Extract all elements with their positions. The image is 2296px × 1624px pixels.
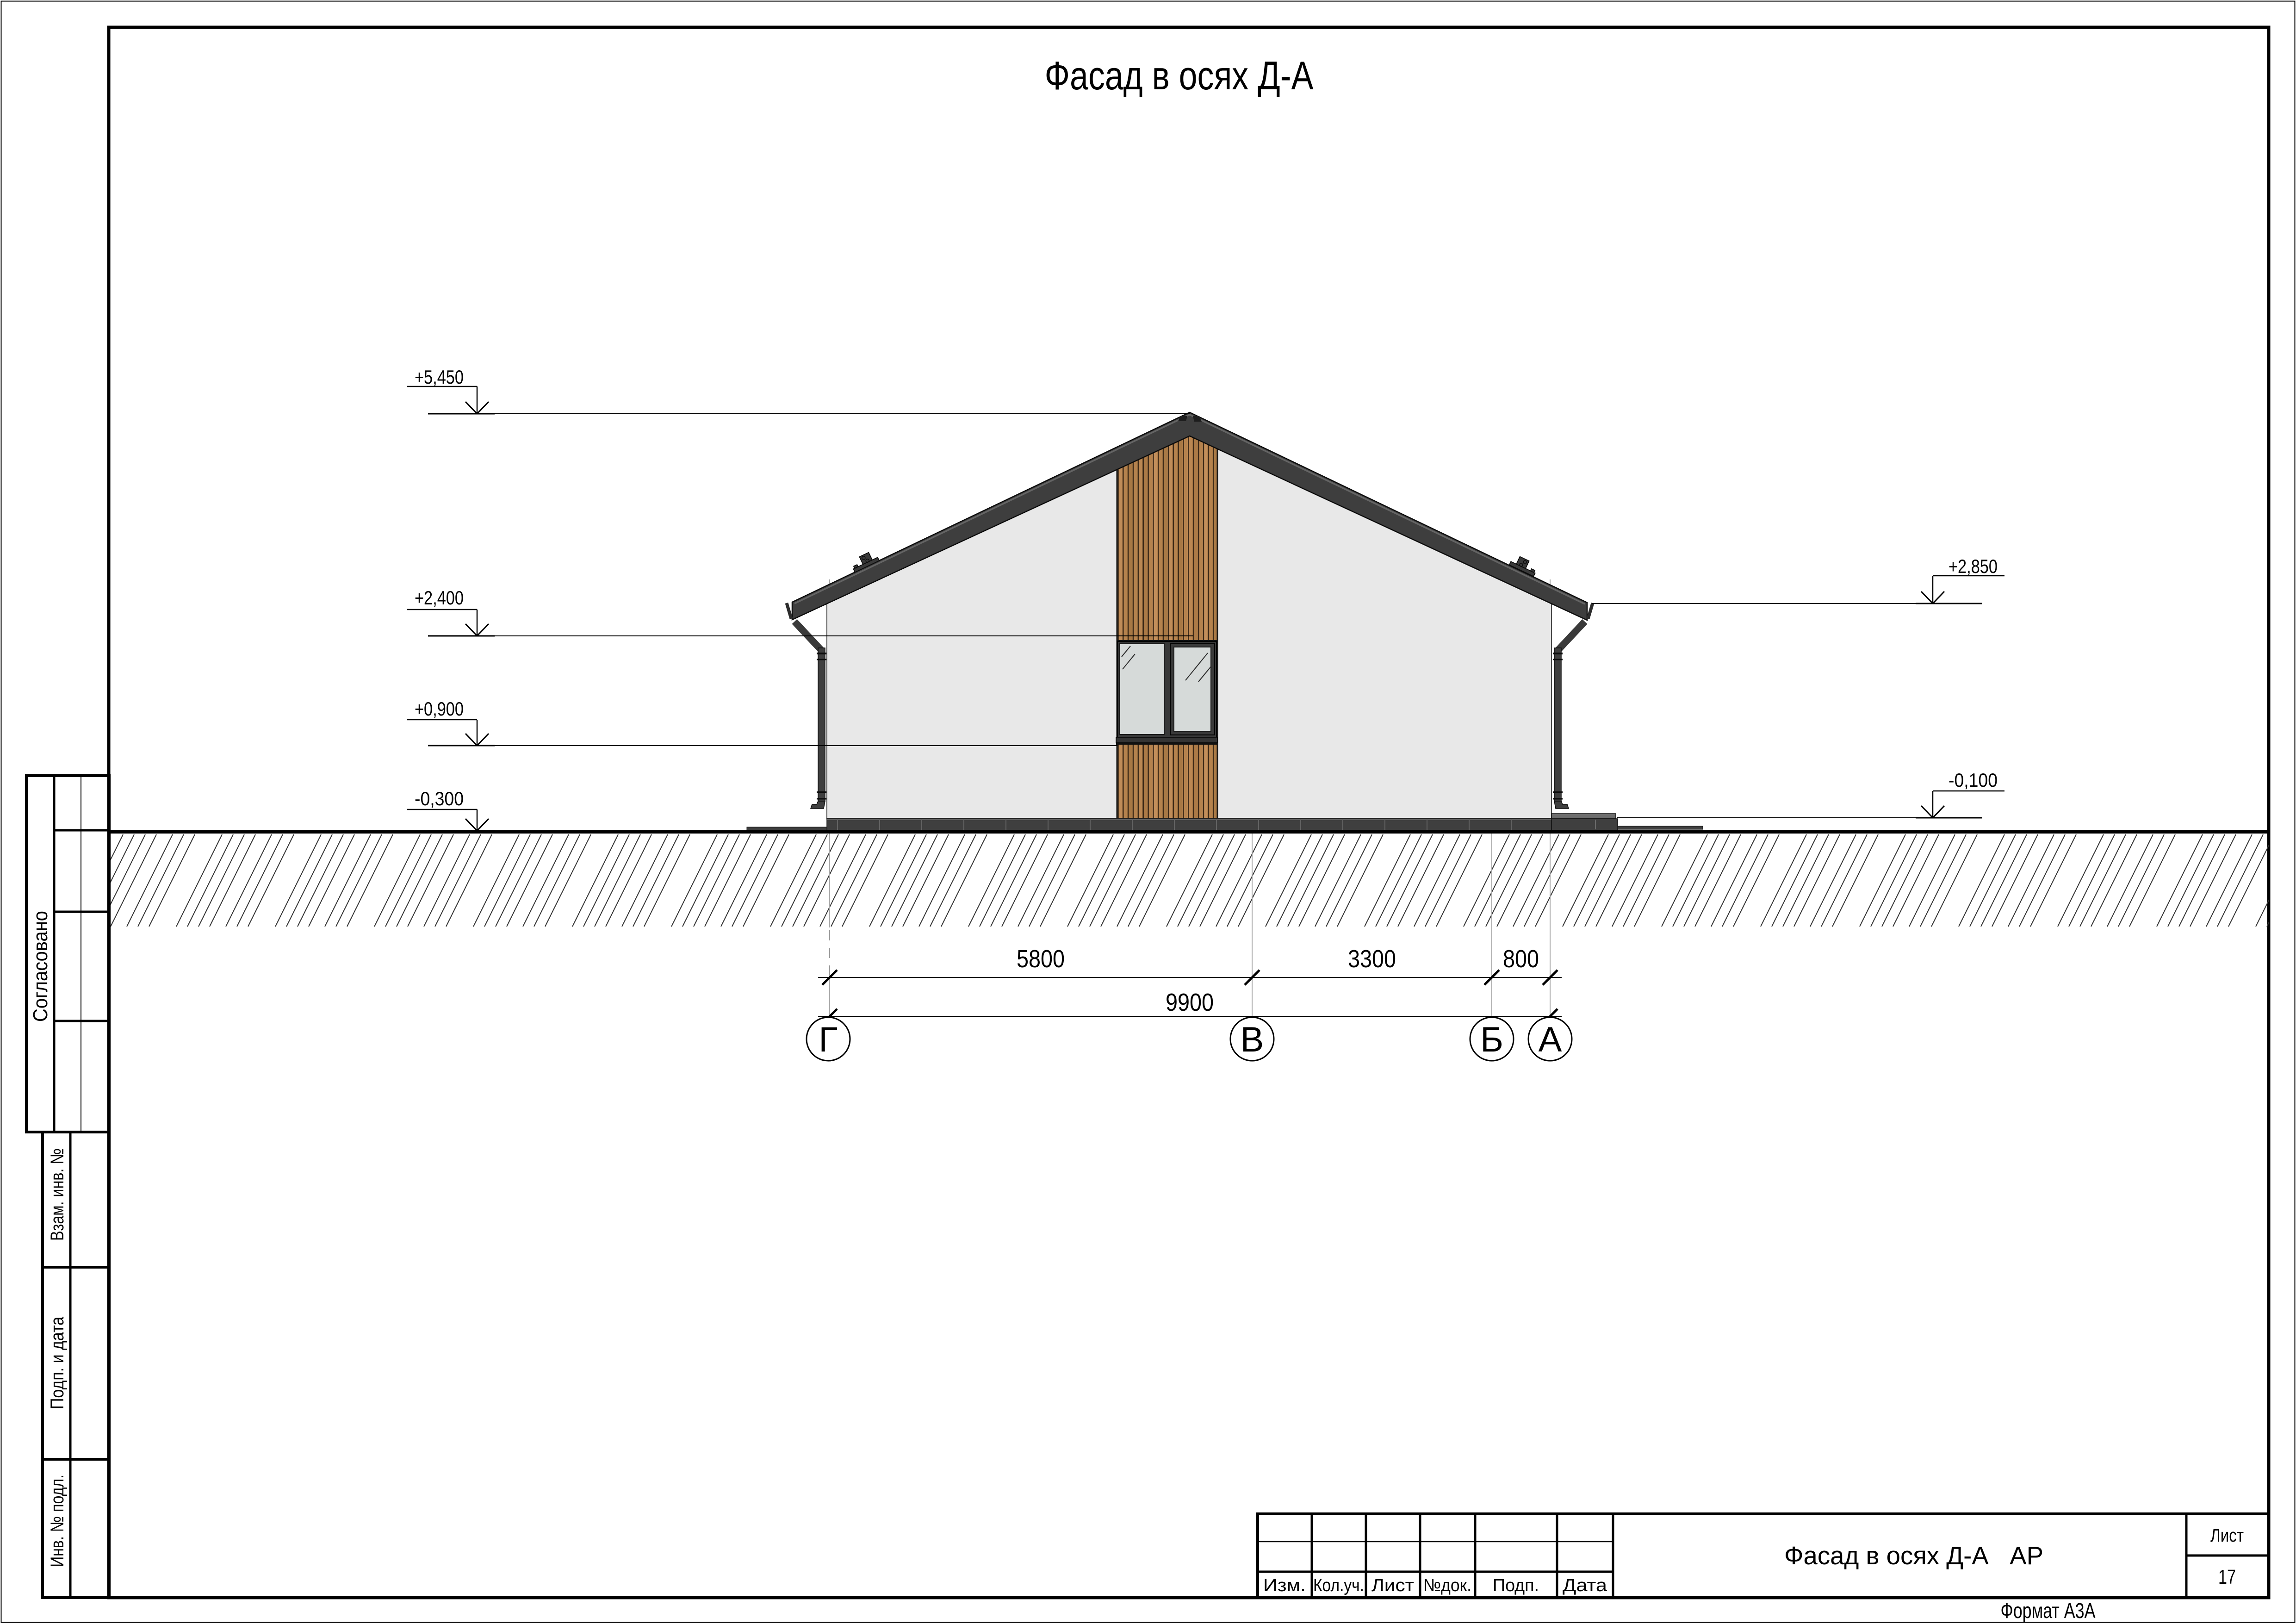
svg-text:Подп. и дата: Подп. и дата <box>47 1316 68 1409</box>
svg-text:3300: 3300 <box>1348 945 1396 973</box>
svg-text:-0,100: -0,100 <box>1948 769 1998 791</box>
svg-text:Лист: Лист <box>2210 1525 2244 1546</box>
svg-text:+2,850: +2,850 <box>1948 555 1998 577</box>
svg-text:+2,400: +2,400 <box>415 587 464 609</box>
svg-text:+5,450: +5,450 <box>415 366 464 388</box>
svg-text:Г: Г <box>819 1020 838 1059</box>
svg-text:Подп.: Подп. <box>1493 1576 1539 1595</box>
svg-text:Взам. инв. №: Взам. инв. № <box>47 1148 68 1241</box>
svg-text:В: В <box>1241 1020 1264 1059</box>
svg-text:Фасад в осях Д-А АР: Фасад в осях Д-А АР <box>1784 1541 2043 1570</box>
svg-text:Согласовано: Согласовано <box>29 911 52 1022</box>
svg-text:Инв. № подл.: Инв. № подл. <box>47 1475 68 1567</box>
svg-text:Фасад в осях Д-А: Фасад в осях Д-А <box>1045 54 1314 98</box>
svg-text:Формат А3А: Формат А3А <box>2001 1599 2096 1623</box>
svg-text:Б: Б <box>1480 1020 1503 1059</box>
svg-text:-0,300: -0,300 <box>415 788 464 809</box>
svg-text:Изм.: Изм. <box>1263 1576 1306 1595</box>
svg-text:9900: 9900 <box>1166 989 1214 1016</box>
svg-text:17: 17 <box>2218 1566 2236 1588</box>
svg-text:Кол.уч.: Кол.уч. <box>1313 1576 1364 1595</box>
svg-text:800: 800 <box>1503 945 1539 973</box>
svg-text:5800: 5800 <box>1017 945 1065 973</box>
svg-text:А: А <box>1539 1020 1562 1059</box>
svg-text:Дата: Дата <box>1563 1576 1607 1595</box>
svg-text:№док.: №док. <box>1423 1576 1471 1595</box>
svg-text:+0,900: +0,900 <box>415 698 464 720</box>
svg-text:Лист: Лист <box>1371 1576 1414 1595</box>
